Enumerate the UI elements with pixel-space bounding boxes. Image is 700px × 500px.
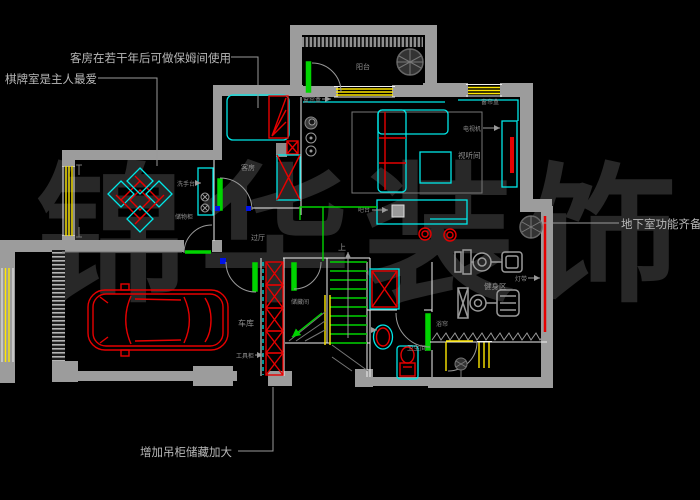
tv — [510, 137, 514, 173]
stairs-up-label: 上 — [338, 243, 346, 252]
door-marker — [220, 258, 226, 264]
gym-label: 健身区 — [484, 281, 507, 291]
balcony-label: 阳台 — [356, 62, 370, 71]
storage-door-leaf — [293, 264, 295, 289]
shower-curtain-label: 浴帘 — [436, 320, 448, 328]
tool-cabinet-label: 工具柜 — [236, 352, 254, 360]
bedroom-door-leaf — [219, 180, 221, 209]
annotation-storage: 增加吊柜储藏加大 — [140, 445, 232, 459]
storage-room-label: 储藏间 — [291, 298, 309, 306]
annotation-chess-room: 棋牌室是主人最爱 — [5, 72, 97, 86]
av-room-label: 视听间 — [458, 150, 481, 160]
balcony-railing-hatch — [302, 37, 423, 47]
curtain-box-right-label: 窗帘盒 — [481, 98, 499, 106]
garage-door-hatch — [52, 250, 65, 362]
plant-icon — [520, 216, 542, 238]
plant-icon — [397, 49, 423, 75]
garage-label: 车库 — [238, 318, 254, 328]
tv-label: 电视机 — [463, 125, 481, 133]
storage-cabinet-label: 储物柜 — [175, 213, 193, 221]
annotation-guest-room: 客房在若干年后可做保姆间使用 — [70, 51, 231, 65]
balcony-door-leaf — [308, 63, 310, 91]
cad-floorplan-screenshot: 锦华装饰 — [0, 0, 700, 500]
wash-stand-label: 洗手台 — [177, 180, 195, 188]
floor-plan-canvas: 锦华装饰 — [0, 0, 700, 500]
guest-room-label: 客房 — [241, 163, 255, 172]
garage-door-leaf — [254, 264, 256, 290]
hall-label: 过厅 — [251, 233, 265, 242]
bar-sink — [392, 205, 404, 217]
light-strip-label: 灯带 — [515, 275, 527, 283]
door-marker — [246, 206, 251, 211]
annotation-basement: 地下室功能齐备 — [621, 217, 700, 231]
curtain-box-left-label: 窗帘盒 — [303, 96, 321, 104]
bathroom-door-leaf — [427, 315, 429, 349]
door-marker — [215, 206, 220, 211]
